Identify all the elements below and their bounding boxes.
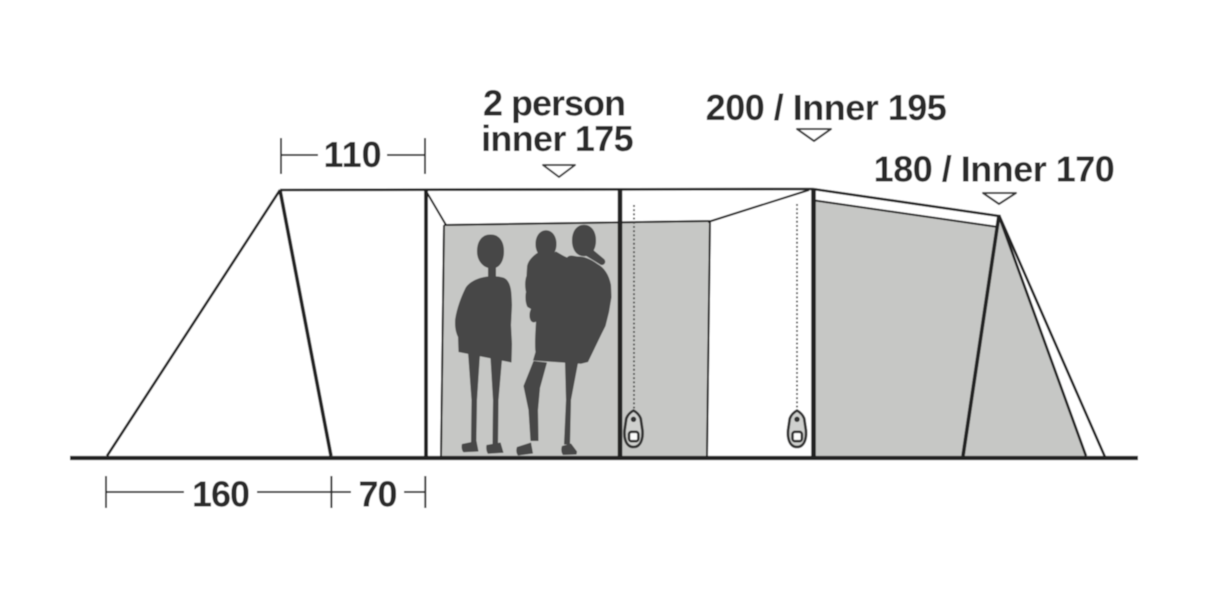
svg-text:180 / Inner 170: 180 / Inner 170 (874, 149, 1115, 190)
svg-text:200 / Inner 195: 200 / Inner 195 (706, 87, 947, 128)
svg-text:inner 175: inner 175 (481, 118, 633, 159)
svg-text:160: 160 (192, 474, 249, 515)
svg-text:110: 110 (324, 134, 382, 175)
svg-text:70: 70 (358, 474, 396, 515)
